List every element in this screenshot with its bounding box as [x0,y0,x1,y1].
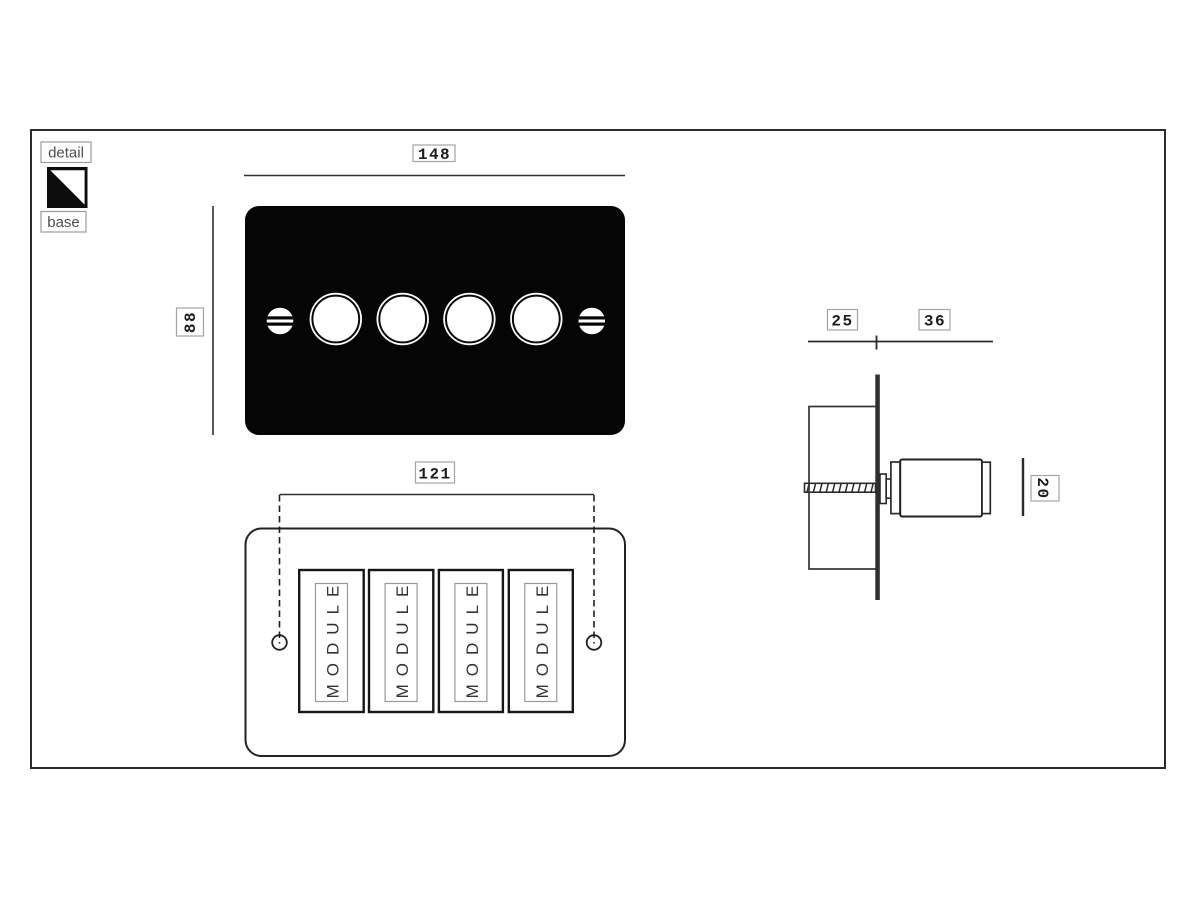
svg-text:MODULE: MODULE [324,578,343,699]
svg-text:121: 121 [418,466,451,484]
svg-text:25: 25 [831,313,853,331]
svg-text:MODULE: MODULE [533,578,552,699]
svg-text:36: 36 [924,313,946,331]
svg-text:MODULE: MODULE [393,578,412,699]
svg-text:detail: detail [48,145,84,162]
svg-text:148: 148 [418,146,451,164]
svg-text:20: 20 [1033,477,1051,499]
svg-text:base: base [47,214,80,231]
svg-text:88: 88 [182,311,200,333]
svg-text:MODULE: MODULE [463,578,482,699]
